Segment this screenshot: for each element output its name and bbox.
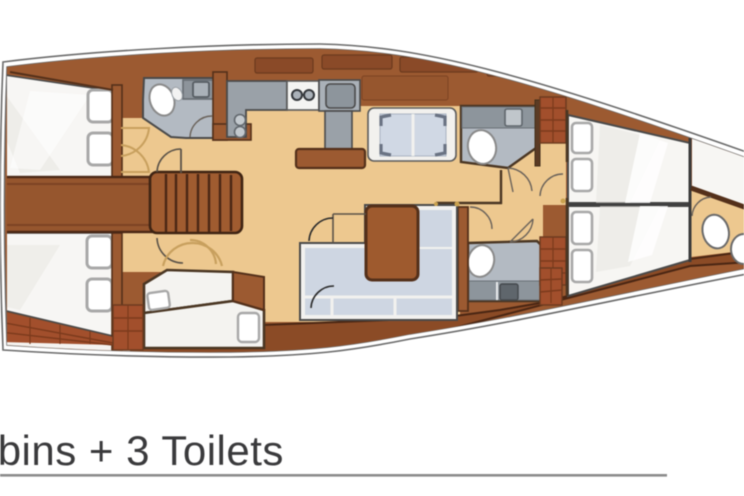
svg-text:Cabins + 3 Toilets: Cabins + 3 Toilets [0, 427, 284, 474]
